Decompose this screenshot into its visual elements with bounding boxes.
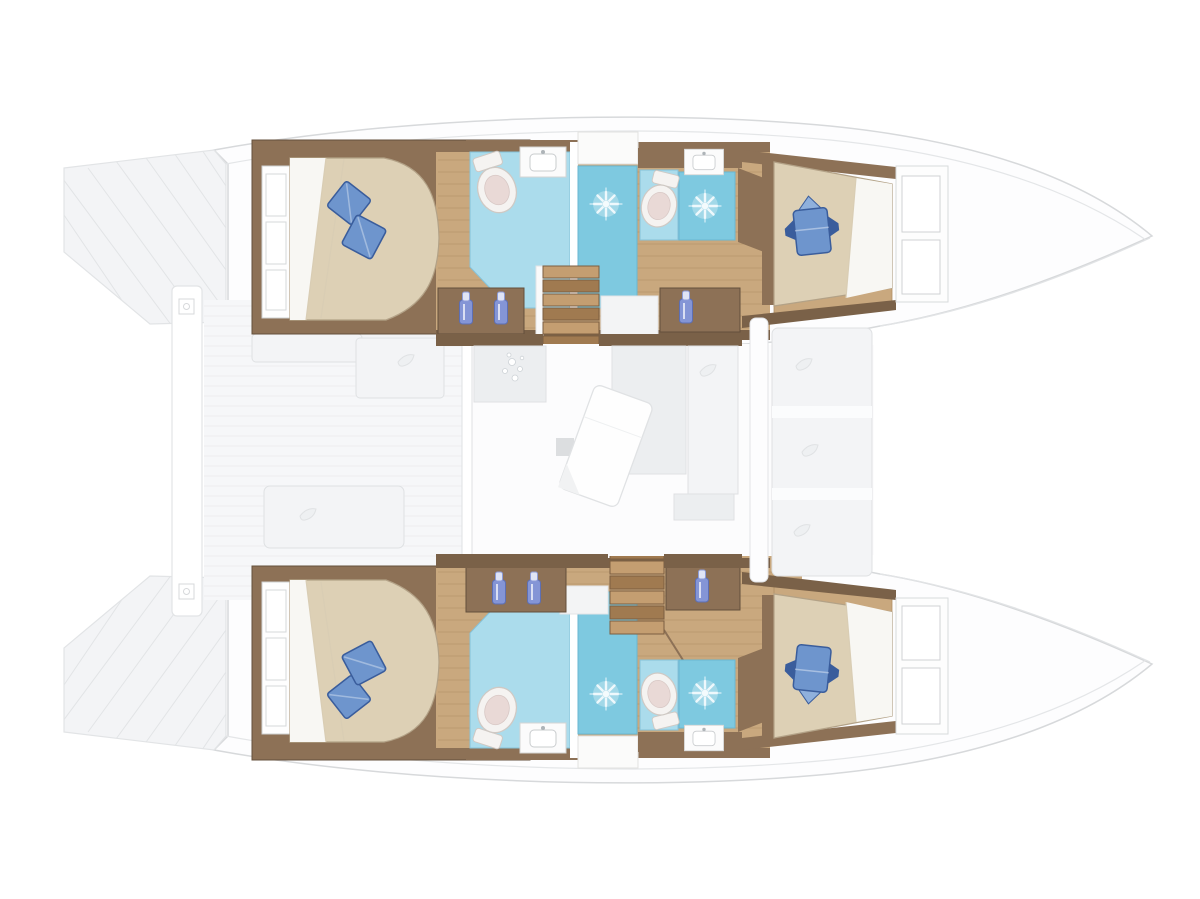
upper-hull-interior — [252, 132, 948, 348]
shower-seat — [578, 132, 638, 164]
platform-latch-top — [179, 299, 194, 314]
sink-vanity — [520, 147, 566, 177]
catamaran-floorplan-page — [0, 0, 1200, 899]
upper-port-counter — [438, 288, 524, 334]
sliding-door — [462, 344, 472, 556]
catamaran-floorplan — [0, 0, 1200, 899]
cockpit-bench-port — [264, 486, 404, 548]
lower-port-counter — [466, 562, 566, 612]
dinette-bench-end — [674, 494, 734, 520]
bow-seating — [772, 328, 872, 576]
cockpit-bench-aft — [252, 334, 362, 362]
lower-forward-cabin — [742, 572, 948, 750]
galley-counter — [474, 346, 546, 402]
platform-latch-bottom — [179, 584, 194, 599]
slanted-wall — [738, 648, 764, 732]
sink-vanity — [684, 149, 723, 175]
seat-gap — [772, 406, 872, 418]
upper-aft-cabin — [262, 158, 439, 320]
slanted-wall — [738, 168, 764, 252]
windshield-band — [750, 318, 768, 582]
bathroom-divider — [570, 590, 578, 758]
stair-landing — [560, 586, 608, 614]
cockpit-seat-starboard — [356, 338, 444, 398]
shower-seat — [578, 736, 638, 768]
aft-cockpit — [204, 300, 462, 600]
upper-starboard-counter — [660, 288, 740, 332]
lower-aft-cabin — [262, 580, 439, 742]
sink-vanity — [520, 723, 566, 753]
bow-cockpit — [750, 318, 872, 582]
lower-starboard-counter — [666, 564, 740, 610]
salon — [436, 334, 750, 568]
aft-platform-beam — [172, 286, 202, 616]
sink-vanity — [684, 725, 723, 751]
upper-forward-cabin — [742, 150, 948, 328]
seat-gap — [772, 488, 872, 500]
